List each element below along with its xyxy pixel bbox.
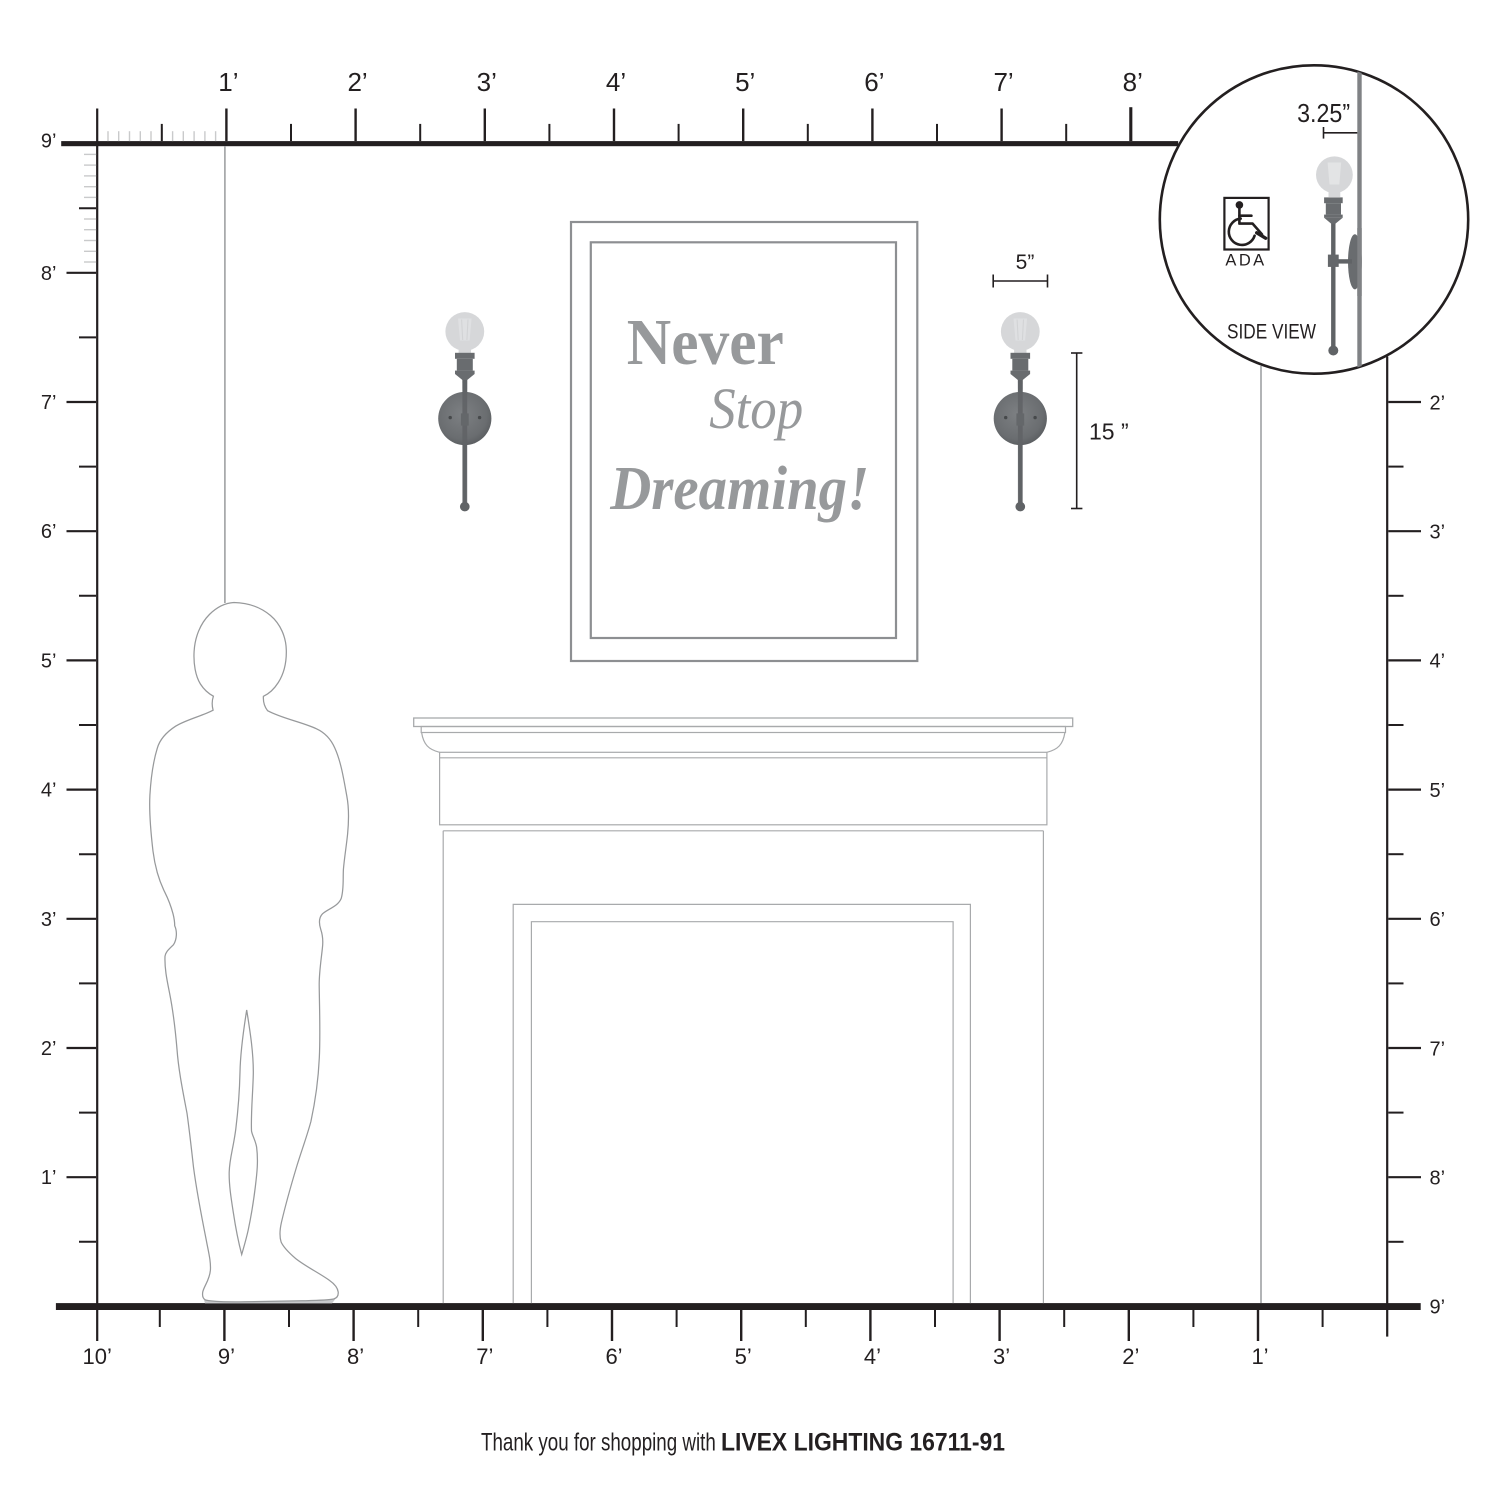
svg-text:Dreaming!: Dreaming! — [609, 455, 869, 523]
svg-text:7’: 7’ — [993, 67, 1013, 97]
svg-text:4’: 4’ — [1430, 651, 1446, 673]
svg-text:2’: 2’ — [347, 67, 367, 97]
svg-text:5’: 5’ — [1430, 780, 1446, 802]
svg-text:5”: 5” — [1016, 251, 1035, 274]
svg-text:5’: 5’ — [735, 1344, 752, 1369]
svg-text:Stop: Stop — [709, 376, 803, 441]
svg-text:3’: 3’ — [1430, 522, 1446, 544]
svg-text:2’: 2’ — [1430, 392, 1446, 414]
svg-text:2’: 2’ — [41, 1038, 57, 1060]
svg-text:9’: 9’ — [41, 131, 57, 153]
svg-text:6’: 6’ — [41, 521, 57, 543]
svg-text:4’: 4’ — [41, 780, 57, 802]
svg-text:9’: 9’ — [218, 1344, 235, 1369]
svg-text:1’: 1’ — [218, 67, 238, 97]
svg-text:4’: 4’ — [606, 67, 626, 97]
svg-text:9’: 9’ — [1430, 1297, 1446, 1319]
svg-text:3’: 3’ — [477, 67, 497, 97]
svg-text:6’: 6’ — [864, 67, 884, 97]
svg-text:1’: 1’ — [41, 1167, 57, 1189]
svg-text:2’: 2’ — [1122, 1344, 1139, 1369]
svg-text:6’: 6’ — [605, 1344, 622, 1369]
svg-text:3.25”: 3.25” — [1297, 98, 1350, 128]
svg-text:8’: 8’ — [41, 263, 57, 285]
svg-text:8’: 8’ — [347, 1344, 364, 1369]
svg-text:SIDE VIEW: SIDE VIEW — [1227, 321, 1316, 344]
svg-text:10’: 10’ — [83, 1344, 112, 1369]
svg-text:1’: 1’ — [1251, 1344, 1268, 1369]
svg-text:5’: 5’ — [41, 650, 57, 672]
svg-text:4’: 4’ — [864, 1344, 881, 1369]
svg-text:7’: 7’ — [41, 392, 57, 414]
svg-text:8’: 8’ — [1430, 1168, 1446, 1190]
svg-text:Never: Never — [627, 306, 784, 379]
svg-text:8’: 8’ — [1123, 67, 1143, 97]
svg-text:15 ”: 15 ” — [1089, 419, 1129, 445]
svg-text:ADA: ADA — [1225, 252, 1266, 270]
svg-text:7’: 7’ — [476, 1344, 493, 1369]
svg-text:7’: 7’ — [1430, 1038, 1446, 1060]
svg-text:3’: 3’ — [993, 1344, 1010, 1369]
svg-text:5’: 5’ — [735, 67, 755, 97]
svg-text:6’: 6’ — [1430, 909, 1446, 931]
svg-text:Thank you for shopping with LI: Thank you for shopping with LIVEX LIGHTI… — [481, 1429, 1005, 1457]
svg-text:3’: 3’ — [41, 909, 57, 931]
